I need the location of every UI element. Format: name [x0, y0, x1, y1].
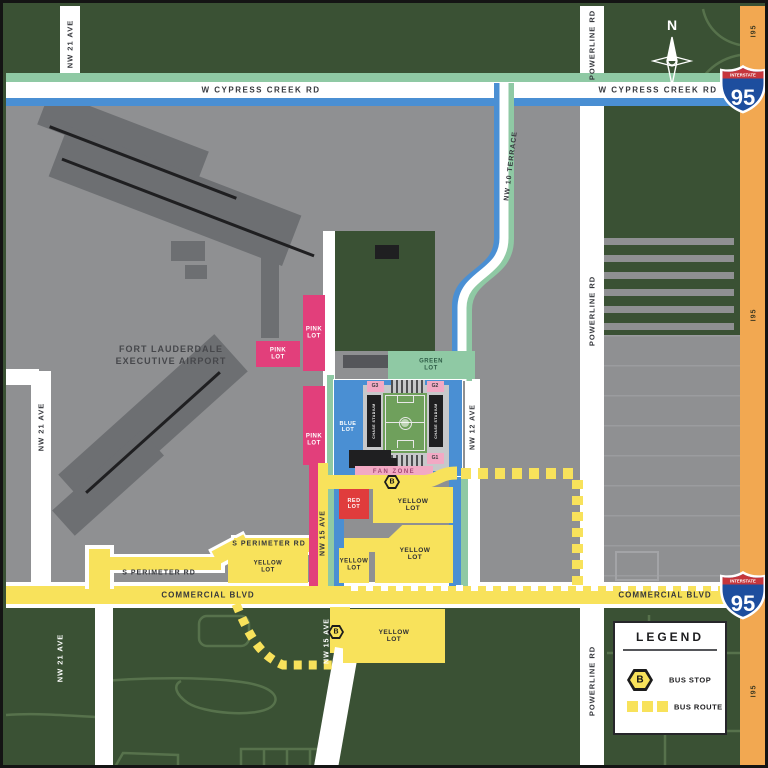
legend-route-swatch [642, 701, 653, 712]
label-powerline-mid: POWERLINE RD [588, 276, 597, 346]
bus-route-dashed-east [461, 468, 575, 479]
legend-bus-stop-label: BUS STOP [669, 676, 711, 685]
north-arrow: N [651, 15, 695, 90]
label-commercial-right: COMMERCIAL BLVD [618, 591, 711, 600]
label-airport-line1: FORT LAUDERDALE [119, 344, 223, 354]
label-yellow-lot-d: YELLOW LOT [251, 560, 285, 573]
legend-divider [623, 649, 717, 651]
label-fan-zone: FAN ZONE [373, 469, 415, 475]
label-s-perimeter-lower: S PERIMETER RD [122, 570, 196, 577]
bus-stop-icon-letter: B [389, 479, 394, 486]
label-nw12-ave: NW 12 AVE [470, 404, 477, 450]
legend-bus-stop-letter: B [636, 675, 643, 686]
label-nw21-south: NW 21 AVE [56, 634, 65, 683]
i95-corridor [740, 6, 768, 768]
label-pink-lot-3: PINK LOT [301, 433, 327, 446]
legend-bus-route-label: BUS ROUTE [674, 703, 723, 712]
bus-route-dotted-southwest [236, 604, 337, 665]
label-i95-top: I95 [751, 25, 758, 38]
label-i95-bottom: I95 [751, 685, 758, 698]
i95-shield-bottom: INTERSTATE 95 [719, 570, 767, 621]
label-nw21-north: NW 21 AVE [66, 20, 75, 69]
label-nw15-south: NW 15 AVE [324, 618, 331, 664]
label-commercial-left: COMMERCIAL BLVD [161, 591, 254, 600]
label-nw21-mid: NW 21 AVE [37, 403, 46, 452]
shield-number: 95 [731, 85, 755, 110]
label-yellow-lot-c: YELLOW LOT [339, 558, 369, 571]
north-letter: N [667, 17, 677, 33]
label-gate-g3: G3 [372, 383, 379, 389]
legend-route-swatch [627, 701, 638, 712]
label-yellow-lot-a: YELLOW LOT [395, 498, 431, 512]
shield-banner-text: INTERSTATE [730, 73, 756, 78]
i95-shield-top: INTERSTATE 95 [719, 64, 767, 115]
bus-stop-icon-letter: B [333, 629, 338, 636]
label-gate-g1: G1 [432, 455, 439, 461]
label-nw15-north: NW 15 AVE [320, 510, 327, 556]
label-powerline-bottom: POWERLINE RD [588, 646, 597, 716]
label-gate-g2: G2 [432, 383, 439, 389]
legend-title: LEGEND [636, 630, 704, 644]
label-i95-mid: I95 [751, 309, 758, 322]
label-red-lot: RED LOT [344, 498, 364, 510]
label-stand-west: CHASE STADIUM [372, 403, 376, 438]
shield-number: 95 [731, 591, 755, 616]
label-airport-line2: EXECUTIVE AIRPORT [116, 356, 227, 366]
label-pink-lot-2: PINK LOT [265, 347, 291, 360]
label-s-perimeter-upper: S PERIMETER RD [232, 541, 306, 548]
label-cypress-left: W CYPRESS CREEK RD [201, 86, 320, 95]
label-yellow-lot-b: YELLOW LOT [397, 547, 433, 561]
parking-transit-map: NW 21 AVE W CYPRESS CREEK RD W CYPRESS C… [0, 0, 768, 768]
label-pink-lot-1: PINK LOT [301, 326, 327, 339]
label-green-lot: GREEN LOT [415, 358, 447, 371]
label-yellow-lot-e: YELLOW LOT [376, 629, 412, 643]
road-stadium-south-curve [418, 473, 457, 482]
label-powerline-top: POWERLINE RD [588, 10, 597, 80]
shield-banner-text: INTERSTATE [730, 579, 756, 584]
label-blue-lot: BLUE LOT [337, 421, 359, 433]
label-stand-east: CHASE STADIUM [434, 403, 438, 438]
bus-route-dashed-powerline [572, 480, 583, 586]
legend-route-swatch [657, 701, 668, 712]
